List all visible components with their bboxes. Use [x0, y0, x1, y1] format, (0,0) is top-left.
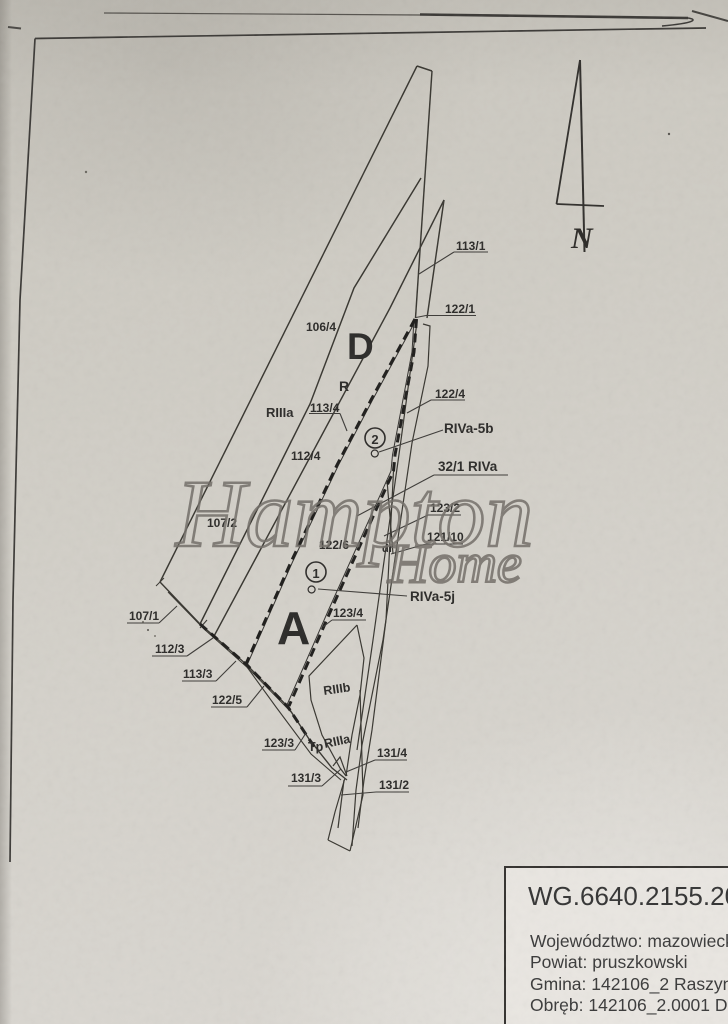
svg-text:RIIIa: RIIIa	[323, 732, 353, 751]
svg-text:131/3: 131/3	[291, 771, 321, 785]
svg-text:113/4: 113/4	[310, 401, 340, 415]
svg-text:131/2: 131/2	[379, 778, 409, 792]
svg-text:RIIIb: RIIIb	[322, 680, 351, 698]
svg-text:2: 2	[371, 432, 378, 447]
svg-text:N: N	[570, 222, 594, 255]
svg-text:122/1: 122/1	[445, 302, 475, 316]
svg-text:122/4: 122/4	[435, 387, 465, 401]
svg-text:123/3: 123/3	[264, 736, 294, 750]
svg-text:Tp: Tp	[308, 740, 324, 754]
svg-text:131/4: 131/4	[377, 746, 407, 760]
svg-text:RIVa-5b: RIVa-5b	[444, 421, 494, 436]
svg-text:122/5: 122/5	[212, 693, 242, 707]
svg-text:112/3: 112/3	[155, 642, 185, 656]
svg-text:RIIIa: RIIIa	[266, 405, 294, 420]
svg-text:107/1: 107/1	[129, 609, 159, 623]
svg-text:113/3: 113/3	[183, 667, 213, 681]
svg-text:1: 1	[312, 566, 319, 581]
svg-text:123/4: 123/4	[333, 606, 363, 620]
svg-text:R: R	[339, 378, 349, 394]
svg-text:113/1: 113/1	[456, 239, 486, 253]
svg-text:D: D	[347, 326, 374, 367]
svg-text:106/4: 106/4	[306, 320, 336, 334]
svg-text:A: A	[277, 602, 310, 654]
svg-text:Home: Home	[387, 533, 522, 595]
